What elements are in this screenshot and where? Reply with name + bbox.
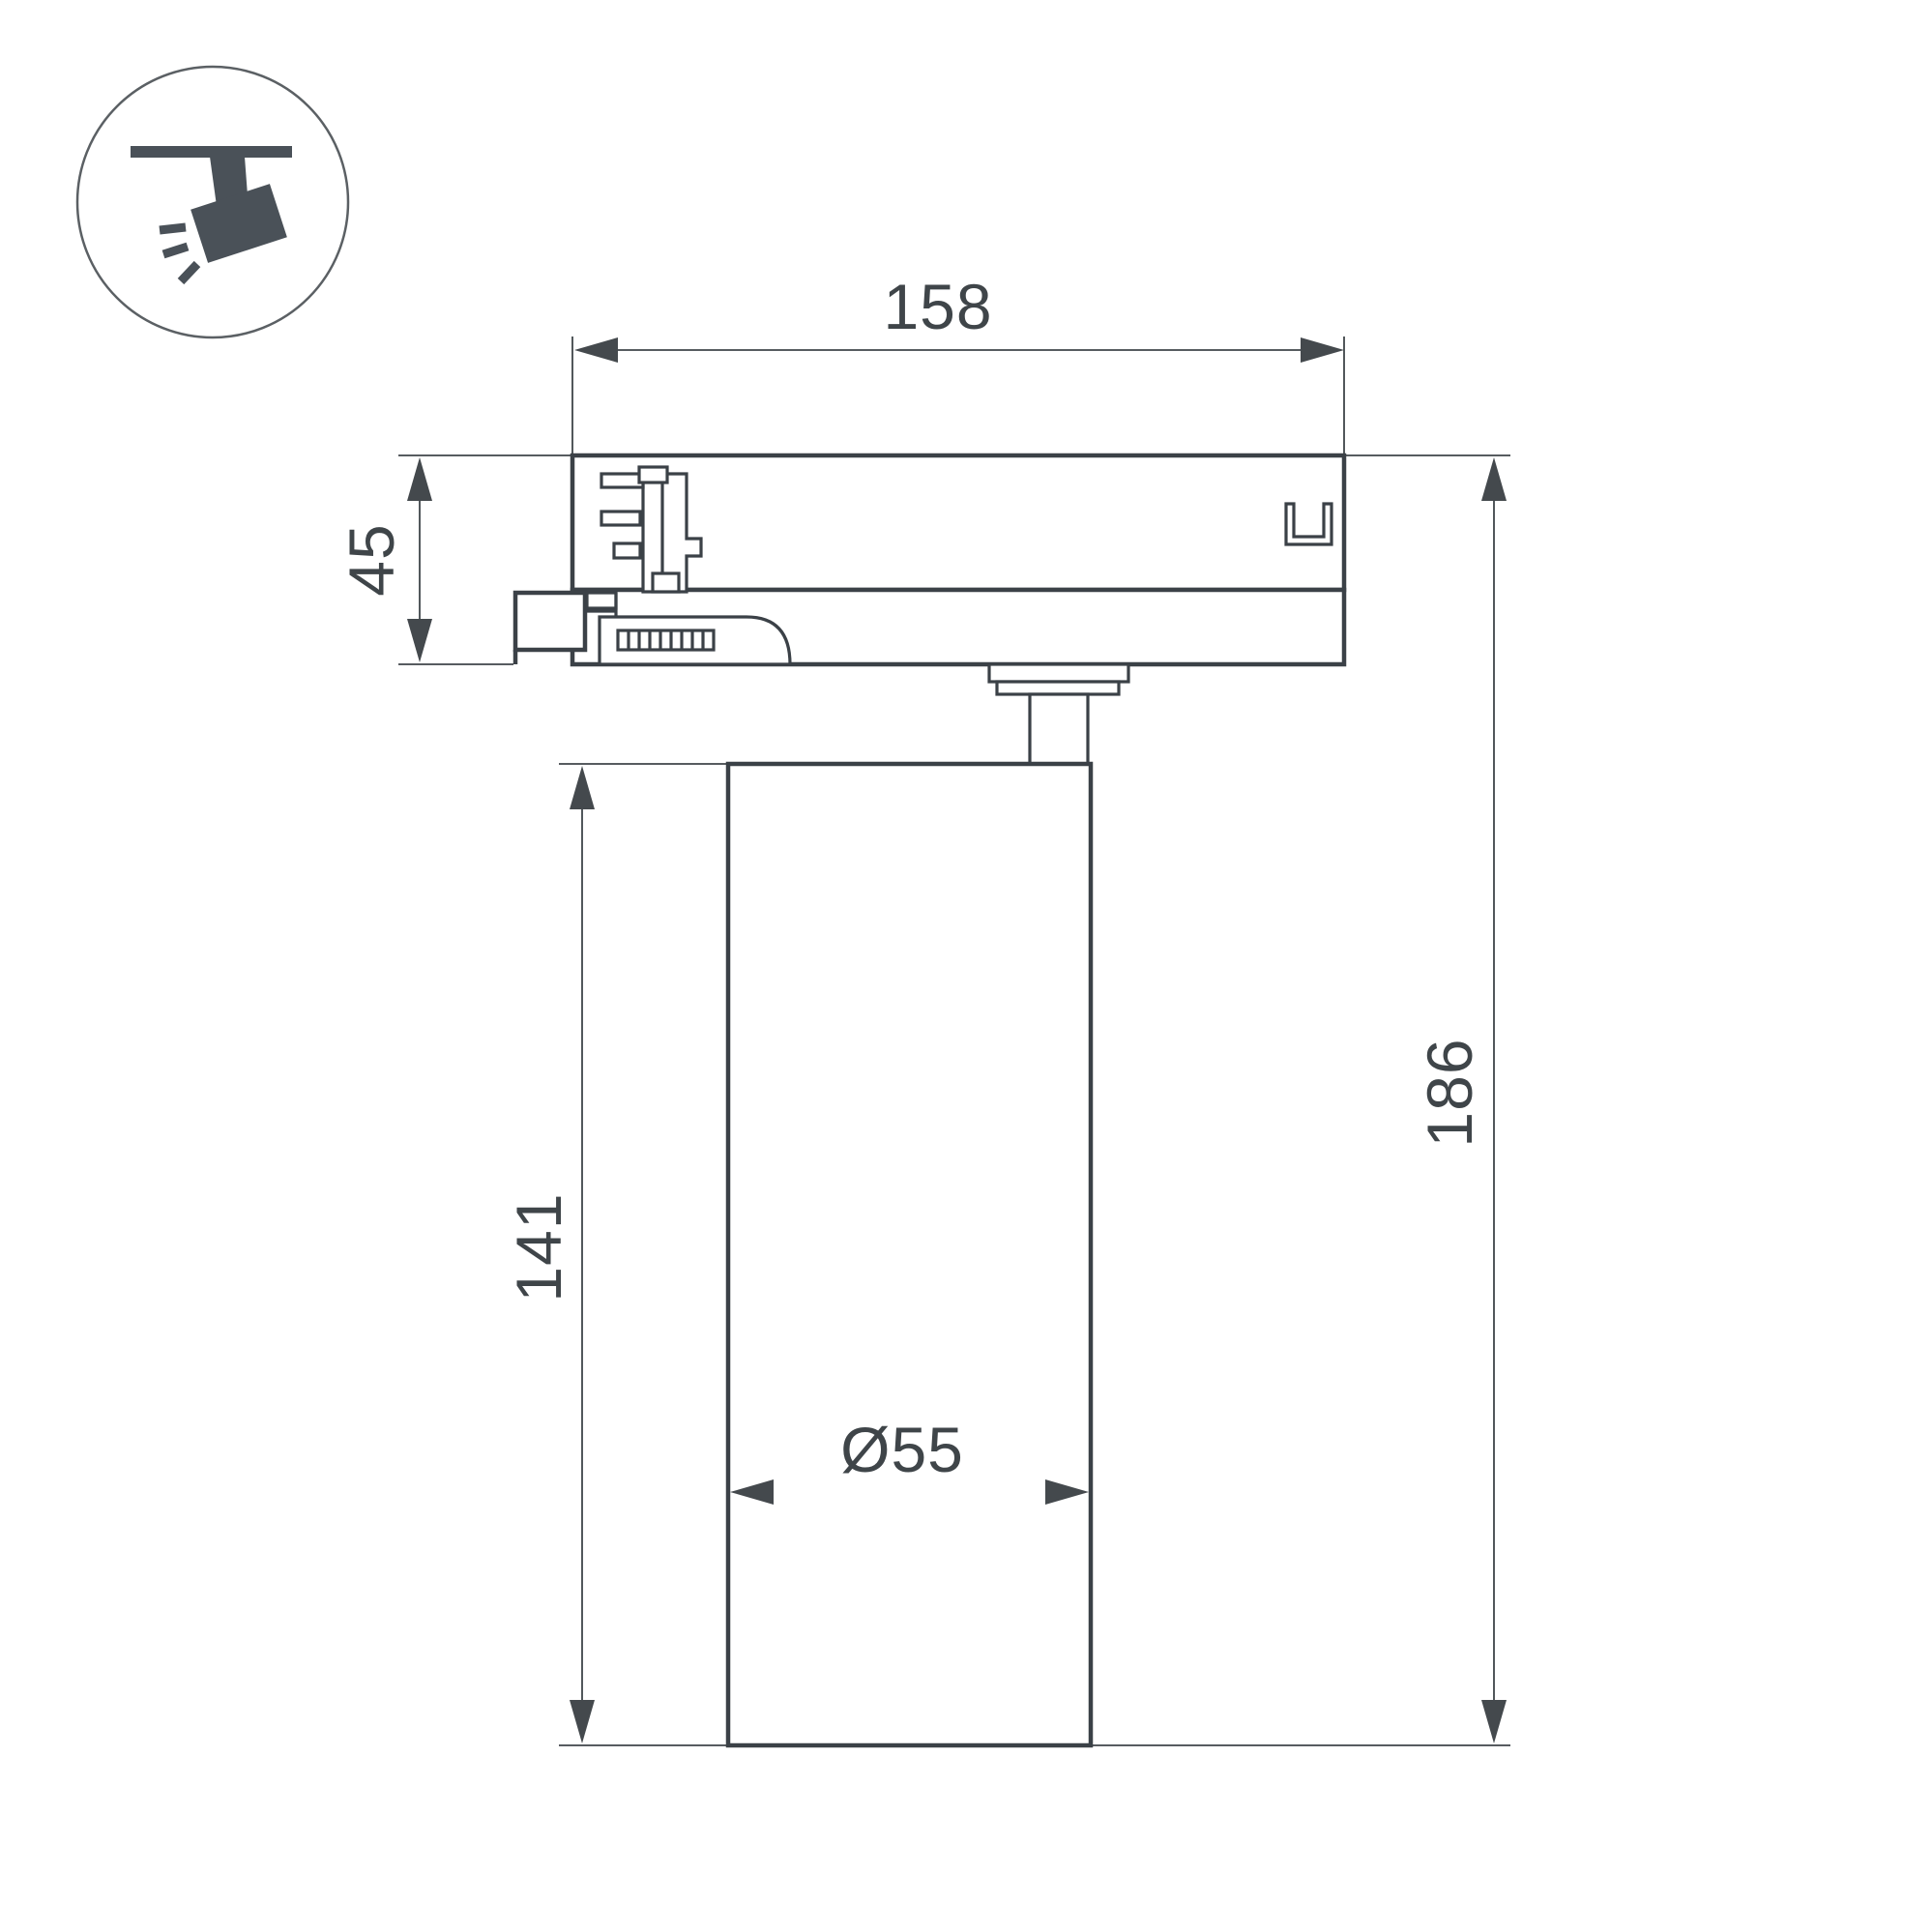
adapter-upper-box xyxy=(572,455,1344,590)
track-light-icon xyxy=(77,67,348,337)
latch-clip xyxy=(587,593,616,608)
arrow-186-top xyxy=(1481,457,1507,501)
arrow-158-right xyxy=(1301,337,1344,363)
contact-prong-3 xyxy=(614,543,640,558)
arrow-186-bottom xyxy=(1481,1700,1507,1743)
contact-prong-1 xyxy=(601,474,643,487)
contact-foot xyxy=(653,573,679,592)
icon-track-bar xyxy=(131,146,292,158)
label-total-height-186: 186 xyxy=(1414,1038,1485,1147)
arrow-141-top xyxy=(570,766,595,809)
arrow-158-left xyxy=(574,337,618,363)
lamp-body-cylinder xyxy=(728,764,1091,1745)
contact-prong-2 xyxy=(601,512,640,525)
swivel-pedestal xyxy=(989,664,1128,766)
label-body-height-141: 141 xyxy=(503,1192,574,1302)
pedestal-stem xyxy=(1030,694,1088,766)
pedestal-plate-narrow xyxy=(997,682,1119,694)
contact-top-cap xyxy=(639,467,667,483)
arrow-141-bottom xyxy=(570,1700,595,1743)
label-adapter-height-45: 45 xyxy=(336,523,407,596)
label-diameter-55: Ø55 xyxy=(840,1414,964,1485)
technical-drawing-page: 158 45 141 Ø55 186 xyxy=(0,0,1932,1932)
latch-block xyxy=(515,593,585,650)
icon-light-ray-1 xyxy=(160,227,186,230)
track-light-dimension-drawing: 158 45 141 Ø55 186 xyxy=(0,0,1932,1932)
arrow-45-bottom xyxy=(407,619,432,662)
track-adapter xyxy=(515,455,1344,664)
label-width-158: 158 xyxy=(883,271,992,342)
pedestal-plate-wide xyxy=(989,664,1128,682)
arrow-45-top xyxy=(407,457,432,501)
icon-circle xyxy=(77,67,348,337)
